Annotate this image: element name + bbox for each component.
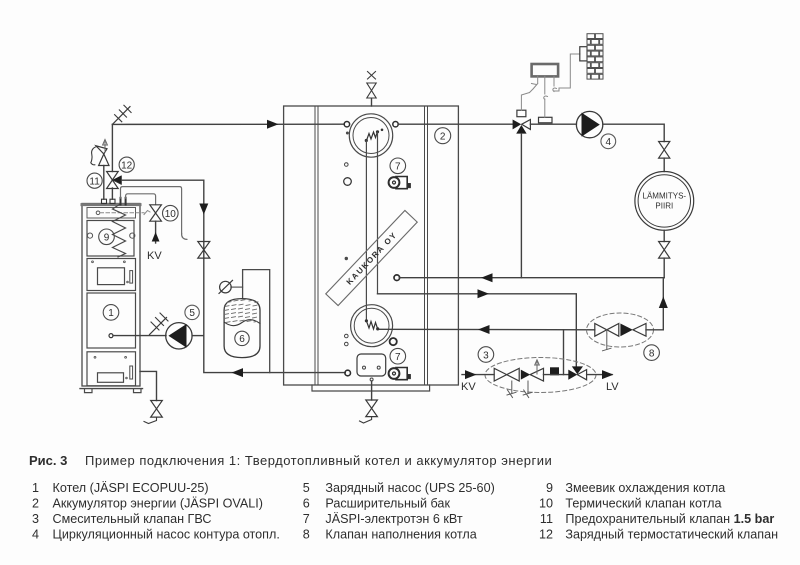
svg-text:Зарядный термостатический клап: Зарядный термостатический клапан: [565, 528, 778, 542]
svg-text:11: 11: [540, 512, 553, 526]
svg-text:Рис. 3: Рис. 3: [29, 453, 67, 468]
svg-text:JÄSPI-электротэн 6 кВт: JÄSPI-электротэн 6 кВт: [325, 512, 462, 526]
svg-text:4: 4: [606, 137, 612, 148]
svg-text:12: 12: [121, 161, 133, 172]
svg-text:Зарядный насос (UPS 25-60): Зарядный насос (UPS 25-60): [325, 481, 494, 495]
svg-text:Котел (JÄSPI ECOPUU-25): Котел (JÄSPI ECOPUU-25): [53, 481, 209, 495]
svg-text:1: 1: [108, 308, 114, 319]
svg-text:1: 1: [32, 481, 39, 495]
svg-text:Термический клапан котла: Термический клапан котла: [565, 497, 721, 511]
svg-text:12: 12: [539, 528, 553, 542]
svg-text:2: 2: [32, 497, 39, 511]
svg-text:LV: LV: [606, 381, 619, 393]
svg-text:Предохранительный клапан 1.5 b: Предохранительный клапан 1.5 bar: [565, 512, 774, 526]
svg-text:5: 5: [189, 308, 195, 319]
svg-text:LÄMMITYS-: LÄMMITYS-: [643, 192, 687, 201]
svg-text:3: 3: [32, 512, 39, 526]
svg-text:Циркуляционный насос контура о: Циркуляционный насос контура отопл.: [53, 528, 280, 542]
svg-text:7: 7: [395, 352, 401, 363]
svg-text:Смесительный клапан ГВС: Смесительный клапан ГВС: [53, 512, 212, 526]
svg-text:5: 5: [303, 481, 310, 495]
svg-text:9: 9: [546, 481, 553, 495]
svg-text:3: 3: [483, 350, 489, 361]
svg-text:Клапан наполнения котла: Клапан наполнения котла: [325, 528, 476, 542]
svg-text:KAUKORA OY: KAUKORA OY: [345, 230, 399, 287]
svg-text:8: 8: [303, 528, 310, 542]
svg-text:Пример подключения 1: Твердото: Пример подключения 1: Твердотопливный ко…: [85, 453, 552, 468]
svg-text:8: 8: [649, 348, 655, 359]
svg-text:KV: KV: [461, 381, 476, 393]
svg-text:6: 6: [303, 497, 310, 511]
svg-text:Змеевик охлаждения котла: Змеевик охлаждения котла: [565, 481, 725, 495]
svg-text:7: 7: [303, 512, 310, 526]
svg-text:KV: KV: [147, 250, 162, 262]
svg-text:Аккумулятор энергии (JÄSPI OVA: Аккумулятор энергии (JÄSPI OVALI): [53, 497, 263, 511]
svg-text:2: 2: [440, 132, 446, 143]
svg-text:7: 7: [395, 162, 401, 173]
svg-text:Расширительный бак: Расширительный бак: [325, 497, 450, 511]
svg-text:9: 9: [104, 233, 110, 244]
svg-text:6: 6: [239, 334, 245, 345]
svg-text:4: 4: [32, 528, 39, 542]
svg-text:PIIRI: PIIRI: [655, 202, 673, 211]
svg-text:10: 10: [539, 497, 553, 511]
svg-text:11: 11: [89, 177, 100, 188]
svg-text:10: 10: [165, 209, 177, 220]
